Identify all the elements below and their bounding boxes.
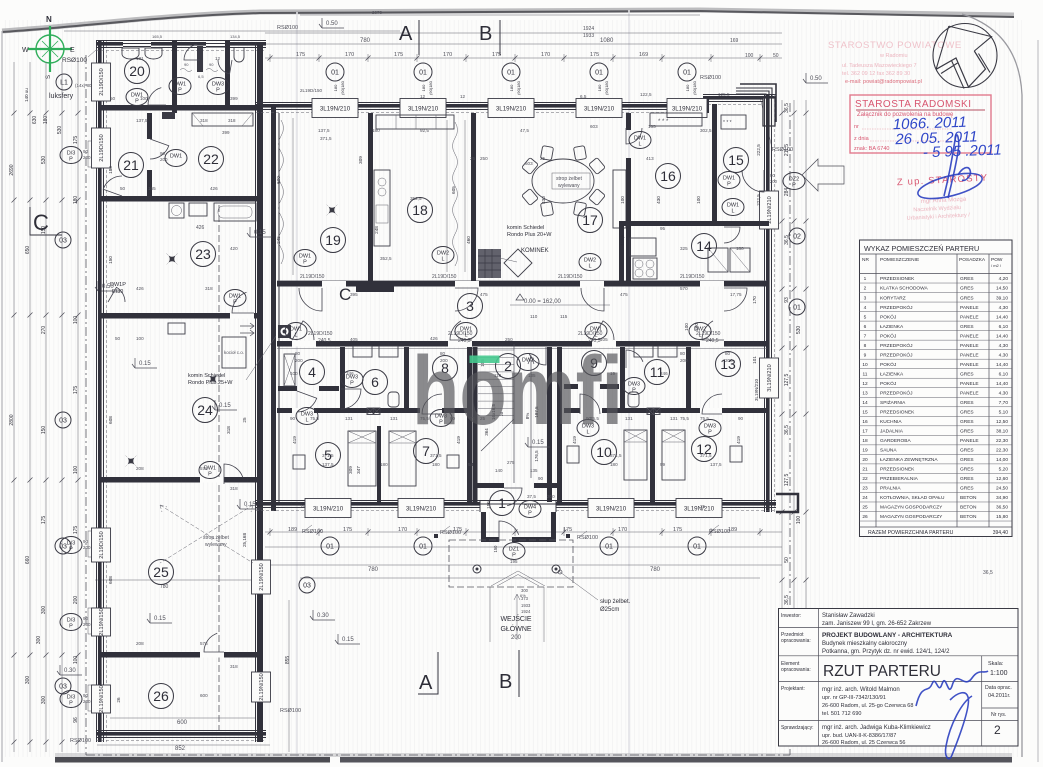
svg-text:3L19N/210: 3L19N/210 (313, 506, 344, 513)
svg-text:22,30: 22,30 (996, 438, 1008, 444)
svg-text:0.15: 0.15 (244, 502, 256, 508)
svg-text:175: 175 (73, 136, 79, 145)
svg-text:STAROSTA RADOMSKI: STAROSTA RADOMSKI (855, 99, 971, 110)
svg-text:4: 4 (864, 305, 867, 311)
svg-text:25: 25 (300, 504, 306, 509)
svg-text:36,50: 36,50 (996, 505, 1008, 511)
svg-text:6,5: 6,5 (198, 74, 204, 79)
svg-text:1: 1 (864, 276, 867, 282)
svg-text:komin Schiedel: komin Schiedel (507, 225, 544, 231)
svg-text:150: 150 (493, 545, 498, 553)
svg-text:P: P (792, 183, 796, 189)
svg-text:95: 95 (660, 226, 666, 231)
svg-text:PANELE: PANELE (960, 362, 979, 368)
svg-text:92,5: 92,5 (420, 128, 429, 133)
svg-text:MAGAZYN GOSPODARCZY: MAGAZYN GOSPODARCZY (880, 514, 943, 520)
svg-text:90: 90 (738, 416, 744, 421)
svg-text:P: P (727, 182, 731, 188)
svg-text:3L19N/210: 3L19N/210 (584, 106, 615, 113)
svg-text:L: L (588, 264, 591, 270)
svg-text:0.15: 0.15 (342, 637, 354, 643)
svg-text:12: 12 (460, 94, 466, 99)
svg-text:PROJEKT BUDOWLANY - ARCHITEKTU: PROJEKT BUDOWLANY - ARCHITEKTURA (822, 632, 953, 639)
svg-text:14,40: 14,40 (996, 362, 1008, 368)
svg-text:* * *: * * * (723, 120, 732, 126)
svg-text:PRZEDPOKÓJ: PRZEDPOKÓJ (880, 351, 913, 358)
svg-text:175: 175 (673, 527, 682, 533)
svg-text:(90)180: (90)180 (604, 80, 609, 95)
svg-text:PANELE: PANELE (960, 381, 979, 387)
svg-text:325: 325 (680, 246, 688, 251)
svg-text:200: 200 (770, 179, 778, 184)
svg-text:309: 309 (358, 156, 363, 164)
svg-text:11: 11 (650, 364, 665, 380)
svg-text:2L19D/150: 2L19D/150 (99, 68, 105, 95)
svg-text:Budynek mieszkalny całoroczny: Budynek mieszkalny całoroczny (822, 641, 907, 647)
svg-text:6,5: 6,5 (580, 94, 587, 99)
svg-text:PRZEDSIONEK: PRZEDSIONEK (880, 410, 915, 416)
svg-text:419: 419 (292, 436, 297, 444)
svg-text:318: 318 (226, 426, 231, 434)
svg-text:P: P (216, 88, 220, 94)
svg-text:399: 399 (230, 96, 238, 101)
svg-text:200: 200 (547, 494, 555, 499)
svg-text:100: 100 (684, 323, 689, 331)
svg-text:2: 2 (864, 286, 867, 292)
svg-text:300: 300 (25, 676, 31, 685)
svg-text:RSØ100: RSØ100 (700, 75, 721, 81)
svg-text:BETON: BETON (960, 505, 977, 511)
svg-text:GARDEROBA: GARDEROBA (880, 438, 911, 444)
svg-text:2L19D/150: 2L19D/150 (99, 531, 105, 558)
svg-text:2070: 2070 (372, 10, 383, 15)
svg-text:2L19D/150: 2L19D/150 (696, 331, 721, 337)
svg-text:7: 7 (864, 333, 867, 339)
svg-text:JADALNIA: JADALNIA (880, 429, 904, 435)
svg-text:318: 318 (228, 118, 236, 123)
svg-text:248: 248 (374, 226, 379, 234)
svg-text:180: 180 (736, 246, 744, 251)
svg-text:17: 17 (862, 429, 868, 435)
svg-text:2L19D/150: 2L19D/150 (99, 134, 105, 161)
svg-text:530: 530 (796, 326, 802, 335)
svg-text:170: 170 (345, 52, 354, 58)
svg-text:200: 200 (680, 358, 688, 363)
svg-text:200: 200 (83, 155, 91, 160)
svg-text:2L19D/150: 2L19D/150 (558, 274, 583, 280)
svg-text:P: P (135, 99, 139, 105)
svg-text:GRES: GRES (960, 295, 974, 301)
svg-text:3L19N/210: 3L19N/210 (496, 106, 527, 113)
svg-text:BETON: BETON (960, 495, 977, 501)
svg-text:125,5: 125,5 (718, 92, 730, 97)
svg-text:GRES: GRES (960, 467, 974, 473)
svg-text:POKÓJ: POKÓJ (880, 380, 897, 387)
svg-text:POKÓJ: POKÓJ (880, 313, 897, 320)
svg-text:18: 18 (412, 202, 428, 218)
svg-text:2L19N/150: 2L19N/150 (259, 673, 265, 700)
svg-text:12: 12 (420, 94, 426, 99)
svg-text:25: 25 (862, 505, 868, 511)
svg-text:01: 01 (419, 70, 427, 77)
svg-text:90: 90 (83, 616, 89, 621)
svg-text:175: 175 (73, 386, 79, 395)
svg-text:90: 90 (209, 62, 214, 67)
svg-text:26: 26 (116, 697, 121, 703)
svg-text:P: P (350, 381, 354, 387)
svg-text:426: 426 (196, 225, 205, 231)
svg-text:03: 03 (59, 238, 67, 245)
svg-text:270: 270 (41, 326, 47, 335)
svg-text:L: L (638, 142, 641, 148)
svg-text:122,5: 122,5 (640, 92, 652, 97)
svg-text:(90)180: (90)180 (340, 80, 345, 95)
svg-text:75,5: 75,5 (680, 416, 689, 421)
svg-text:12: 12 (215, 56, 221, 61)
svg-text:175: 175 (41, 516, 47, 525)
svg-text:13: 13 (720, 356, 736, 372)
svg-text:200: 200 (83, 545, 91, 550)
svg-text:RSØ100: RSØ100 (62, 57, 87, 64)
svg-text:3L19N/210: 3L19N/210 (767, 364, 773, 391)
svg-text:B: B (499, 671, 512, 693)
svg-text:1080: 1080 (600, 38, 614, 44)
svg-text:10: 10 (862, 362, 868, 368)
svg-text:POKÓJ: POKÓJ (880, 332, 897, 339)
svg-text:* * *: * * * (658, 119, 669, 125)
svg-text:z dnia: z dnia (854, 136, 870, 142)
svg-text:P: P (69, 624, 73, 630)
svg-text:12,50: 12,50 (996, 419, 1008, 425)
svg-text:318: 318 (230, 664, 238, 669)
svg-text:7: 7 (422, 443, 430, 459)
svg-text:660: 660 (25, 556, 31, 565)
svg-text:21: 21 (123, 157, 139, 173)
svg-text:2L19D/150: 2L19D/150 (680, 274, 705, 280)
svg-text:2L19D/150: 2L19D/150 (300, 88, 323, 93)
svg-text:22: 22 (203, 151, 219, 167)
svg-text:2: 2 (994, 723, 1001, 737)
svg-text:150: 150 (41, 426, 47, 435)
svg-text:DW1: DW1 (170, 154, 182, 160)
svg-text:20: 20 (862, 457, 868, 463)
svg-text:PANELE: PANELE (960, 343, 979, 349)
svg-text:38,10: 38,10 (996, 429, 1008, 435)
svg-text:576: 576 (200, 641, 208, 646)
svg-text:13: 13 (862, 390, 868, 396)
svg-text:26: 26 (862, 514, 868, 520)
svg-text:14,40: 14,40 (996, 381, 1008, 387)
svg-text:175: 175 (590, 52, 599, 58)
svg-text:słup żelbet.: słup żelbet. (600, 599, 631, 605)
svg-text:RSØ100: RSØ100 (70, 738, 91, 744)
svg-text:6: 6 (371, 374, 379, 390)
svg-text:3L19N/210: 3L19N/210 (672, 106, 703, 113)
svg-text:kocioł c.o.: kocioł c.o. (224, 350, 244, 355)
svg-text:01: 01 (693, 544, 701, 551)
svg-text:04.2011r.: 04.2011r. (988, 693, 1011, 699)
svg-text:Inwestor:: Inwestor: (781, 613, 801, 619)
svg-text:50: 50 (115, 336, 121, 341)
svg-text:5,10: 5,10 (999, 410, 1009, 416)
svg-text:180: 180 (108, 166, 113, 174)
svg-text:Data oprac.: Data oprac. (985, 685, 1012, 691)
svg-text:460: 460 (466, 236, 471, 244)
svg-text:110,5: 110,5 (620, 234, 625, 246)
svg-text:KLATKA SCHODOWA: KLATKA SCHODOWA (880, 286, 929, 292)
svg-text:03: 03 (59, 684, 67, 691)
svg-text:03: 03 (303, 583, 311, 590)
svg-text:90: 90 (290, 416, 296, 421)
svg-text:650: 650 (25, 246, 31, 255)
svg-text:P: P (69, 547, 73, 553)
svg-text:16: 16 (862, 419, 868, 425)
svg-text:mgr inż. arch. Witold Malmon: mgr inż. arch. Witold Malmon (822, 687, 900, 693)
svg-text:475: 475 (480, 292, 488, 297)
svg-text:36,5: 36,5 (784, 103, 790, 113)
svg-text:200: 200 (83, 622, 91, 627)
svg-text:200: 200 (73, 596, 79, 605)
svg-text:394,40: 394,40 (993, 530, 1009, 536)
svg-text:P: P (708, 430, 712, 436)
svg-text:P: P (303, 260, 307, 266)
svg-text:WYKAZ POMIESZCZEŃ PARTERU: WYKAZ POMIESZCZEŃ PARTERU (864, 244, 979, 253)
svg-text:165,5: 165,5 (152, 34, 163, 39)
svg-text:tel. 501 712 690: tel. 501 712 690 (822, 711, 861, 717)
svg-text:3: 3 (466, 298, 474, 314)
svg-text:24: 24 (862, 495, 868, 501)
svg-text:6,10: 6,10 (999, 371, 1009, 377)
svg-text:419: 419 (736, 436, 741, 444)
svg-text:246: 246 (346, 371, 354, 376)
svg-text:P: P (632, 388, 636, 394)
svg-text:0.50: 0.50 (810, 76, 822, 82)
svg-text:426: 426 (136, 286, 144, 291)
svg-text:100: 100 (745, 53, 754, 59)
svg-text:3: 3 (864, 295, 867, 301)
svg-text:347: 347 (356, 466, 361, 474)
svg-text:Nr rys.: Nr rys. (991, 712, 1006, 718)
svg-text:3L19N/210: 3L19N/210 (408, 106, 439, 113)
svg-text:2L19N/210: 2L19N/210 (767, 196, 773, 223)
svg-text:90: 90 (83, 539, 89, 544)
svg-text:strop żelbet: strop żelbet (556, 176, 582, 182)
svg-text:4,30: 4,30 (999, 390, 1009, 396)
svg-text:16: 16 (660, 168, 676, 184)
svg-text:17: 17 (582, 212, 598, 228)
svg-text:12: 12 (862, 381, 868, 387)
svg-text:25: 25 (700, 504, 706, 509)
svg-text:50: 50 (784, 557, 790, 563)
svg-text:200: 200 (694, 323, 699, 331)
svg-text:MAGAZYN GOSPODARCZY: MAGAZYN GOSPODARCZY (880, 505, 943, 511)
svg-text:2L19N/150: 2L19N/150 (99, 685, 105, 712)
svg-text:P: P (69, 701, 73, 707)
svg-text:200: 200 (295, 358, 303, 363)
svg-text:475: 475 (620, 292, 628, 297)
svg-text:20: 20 (129, 63, 145, 79)
svg-text:Ø25cm: Ø25cm (600, 607, 619, 613)
svg-text:169: 169 (639, 52, 648, 58)
svg-text:6: 6 (864, 324, 867, 330)
svg-text:34,90: 34,90 (996, 495, 1008, 501)
svg-text:25,168: 25,168 (242, 533, 247, 547)
svg-text:780: 780 (360, 38, 371, 44)
svg-text:tel. 362 09 12 fax 362 89 30: tel. 362 09 12 fax 362 89 30 (842, 71, 910, 77)
svg-text:100: 100 (796, 516, 802, 525)
svg-text:GRES: GRES (960, 476, 974, 482)
svg-text:14,50: 14,50 (996, 286, 1008, 292)
svg-text:BETON: BETON (960, 514, 977, 520)
svg-text:GRES: GRES (960, 419, 974, 425)
svg-text:RSØ100: RSØ100 (277, 25, 298, 31)
svg-text:2690: 2690 (9, 164, 15, 175)
svg-text:603: 603 (525, 161, 533, 166)
svg-text:2800: 2800 (9, 414, 15, 425)
svg-text:137,5: 137,5 (136, 118, 148, 123)
svg-text:26-600 Radom, ul. 25 Czerwca 5: 26-600 Radom, ul. 25 Czerwca 56 (822, 740, 905, 746)
svg-text:24: 24 (197, 402, 213, 418)
svg-text:GRES: GRES (960, 371, 974, 377)
svg-text:75,5: 75,5 (310, 416, 319, 421)
svg-text:01: 01 (605, 544, 613, 551)
svg-text:352,5: 352,5 (380, 256, 392, 261)
svg-text:371,5: 371,5 (320, 136, 332, 141)
svg-text:2L19D/150: 2L19D/150 (308, 331, 333, 337)
svg-text:RSØ100: RSØ100 (772, 147, 793, 153)
svg-text:300: 300 (41, 696, 47, 705)
svg-text:170: 170 (752, 296, 757, 304)
svg-text:komin Schiedel: komin Schiedel (188, 373, 225, 379)
svg-text:Projektant:: Projektant: (781, 686, 805, 692)
svg-text:P: P (208, 472, 212, 478)
svg-text:399: 399 (222, 130, 230, 135)
svg-text:7,70: 7,70 (999, 400, 1009, 406)
svg-text:26-600 Radom, ul. 25-go Czerwc: 26-600 Radom, ul. 25-go Czerwca 68 (822, 703, 913, 709)
svg-text:01: 01 (419, 544, 427, 551)
svg-text:208: 208 (136, 641, 144, 646)
svg-text:222,5: 222,5 (756, 144, 761, 156)
svg-text:19: 19 (325, 232, 341, 248)
svg-text:426: 426 (210, 186, 218, 191)
svg-text:KUCHNIA: KUCHNIA (880, 419, 902, 425)
svg-text:0.30: 0.30 (64, 668, 76, 674)
svg-text:54: 54 (468, 462, 474, 467)
svg-text:0.30: 0.30 (317, 613, 329, 619)
svg-text:240,5: 240,5 (318, 338, 331, 344)
svg-text:180: 180 (509, 84, 514, 91)
svg-text:mgr inż. arch. Jadwiga Kuba-Kl: mgr inż. arch. Jadwiga Kuba-Klimkiewicz (822, 725, 931, 731)
svg-text:01: 01 (595, 70, 603, 77)
svg-text:170: 170 (398, 527, 407, 533)
svg-text:14: 14 (862, 400, 868, 406)
svg-text:140 uu: 140 uu (24, 88, 29, 102)
svg-text:90: 90 (538, 476, 544, 481)
svg-text:0.50: 0.50 (326, 21, 338, 27)
svg-text:GŁÓWNE: GŁÓWNE (500, 624, 531, 633)
svg-text:PRZEDPOKÓJ: PRZEDPOKÓJ (880, 342, 913, 349)
svg-text:01: 01 (331, 70, 339, 77)
svg-text:Stanisław Zawadzki: Stanisław Zawadzki (822, 613, 875, 619)
svg-text:(90)180: (90)180 (428, 80, 433, 95)
svg-text:300: 300 (521, 588, 529, 593)
svg-text:02: 02 (793, 234, 801, 241)
svg-text:90: 90 (184, 62, 189, 67)
svg-text:413: 413 (646, 156, 654, 161)
svg-text:318: 318 (200, 118, 208, 123)
svg-text:L: L (731, 209, 734, 215)
svg-text:169: 169 (730, 38, 739, 44)
svg-text:180: 180 (597, 84, 602, 91)
svg-text:W: W (22, 47, 29, 54)
svg-text:L: L (441, 257, 444, 263)
svg-text:96: 96 (73, 717, 79, 723)
svg-text:0.15: 0.15 (154, 616, 166, 622)
svg-text:PRZEDPOKÓJ: PRZEDPOKÓJ (880, 304, 913, 311)
svg-text:P: P (528, 511, 532, 517)
svg-text:zam. Janiszew 99 I, gm. 26-652: zam. Janiszew 99 I, gm. 26-652 Zakrzew (822, 621, 932, 627)
svg-text:PRZEDSIONEK: PRZEDSIONEK (880, 276, 915, 282)
svg-text:1924: 1924 (583, 26, 594, 32)
svg-text:14,40: 14,40 (996, 333, 1008, 339)
svg-text:2L19N/150: 2L19N/150 (99, 608, 105, 635)
svg-text:8: 8 (864, 343, 867, 349)
svg-text:37,5: 37,5 (527, 494, 536, 499)
svg-text:100: 100 (136, 336, 144, 341)
svg-text:180: 180 (421, 84, 426, 91)
svg-text:wylewany: wylewany (558, 183, 580, 189)
svg-text:90: 90 (160, 151, 166, 156)
svg-text:93: 93 (784, 297, 790, 303)
svg-text:50: 50 (120, 186, 126, 191)
svg-text:131: 131 (625, 416, 633, 421)
svg-text:608: 608 (108, 576, 113, 584)
svg-text:134,5: 134,5 (230, 34, 241, 39)
svg-text:90: 90 (83, 693, 89, 698)
svg-text:222,5: 222,5 (756, 194, 761, 206)
svg-text:309: 309 (348, 466, 353, 474)
svg-text:0.15: 0.15 (254, 230, 266, 236)
svg-text:15: 15 (728, 152, 744, 168)
svg-text:245: 245 (276, 236, 281, 244)
svg-text:170: 170 (443, 52, 452, 58)
svg-text:DW1P: DW1P (110, 282, 126, 288)
svg-text:100: 100 (73, 466, 79, 475)
svg-text:175: 175 (563, 527, 572, 533)
svg-text:2L19D/150: 2L19D/150 (300, 274, 325, 280)
svg-text:80: 80 (295, 351, 301, 356)
svg-text:530: 530 (41, 156, 47, 165)
svg-text:570: 570 (680, 286, 688, 291)
svg-text:5: 5 (324, 447, 332, 463)
svg-text:4,30: 4,30 (999, 305, 1009, 311)
svg-text:WEJŚCIE: WEJŚCIE (500, 614, 531, 623)
svg-text:200: 200 (160, 157, 168, 162)
svg-text:25: 25 (470, 156, 476, 161)
svg-text:4,30: 4,30 (999, 352, 1009, 358)
svg-text:189: 189 (288, 527, 297, 533)
svg-text:39,10: 39,10 (996, 295, 1008, 301)
svg-text:302,5: 302,5 (700, 128, 712, 133)
svg-text:100: 100 (696, 196, 701, 204)
svg-text:(14x) 80: (14x) 80 (75, 83, 92, 88)
svg-text:POMIESZCZENIE: POMIESZCZENIE (880, 257, 919, 263)
svg-text:47,5: 47,5 (520, 128, 529, 133)
svg-text:P: P (233, 300, 237, 306)
svg-text:luksfery: luksfery (49, 93, 74, 100)
svg-text:18: 18 (862, 438, 868, 444)
svg-text:25: 25 (153, 564, 169, 580)
